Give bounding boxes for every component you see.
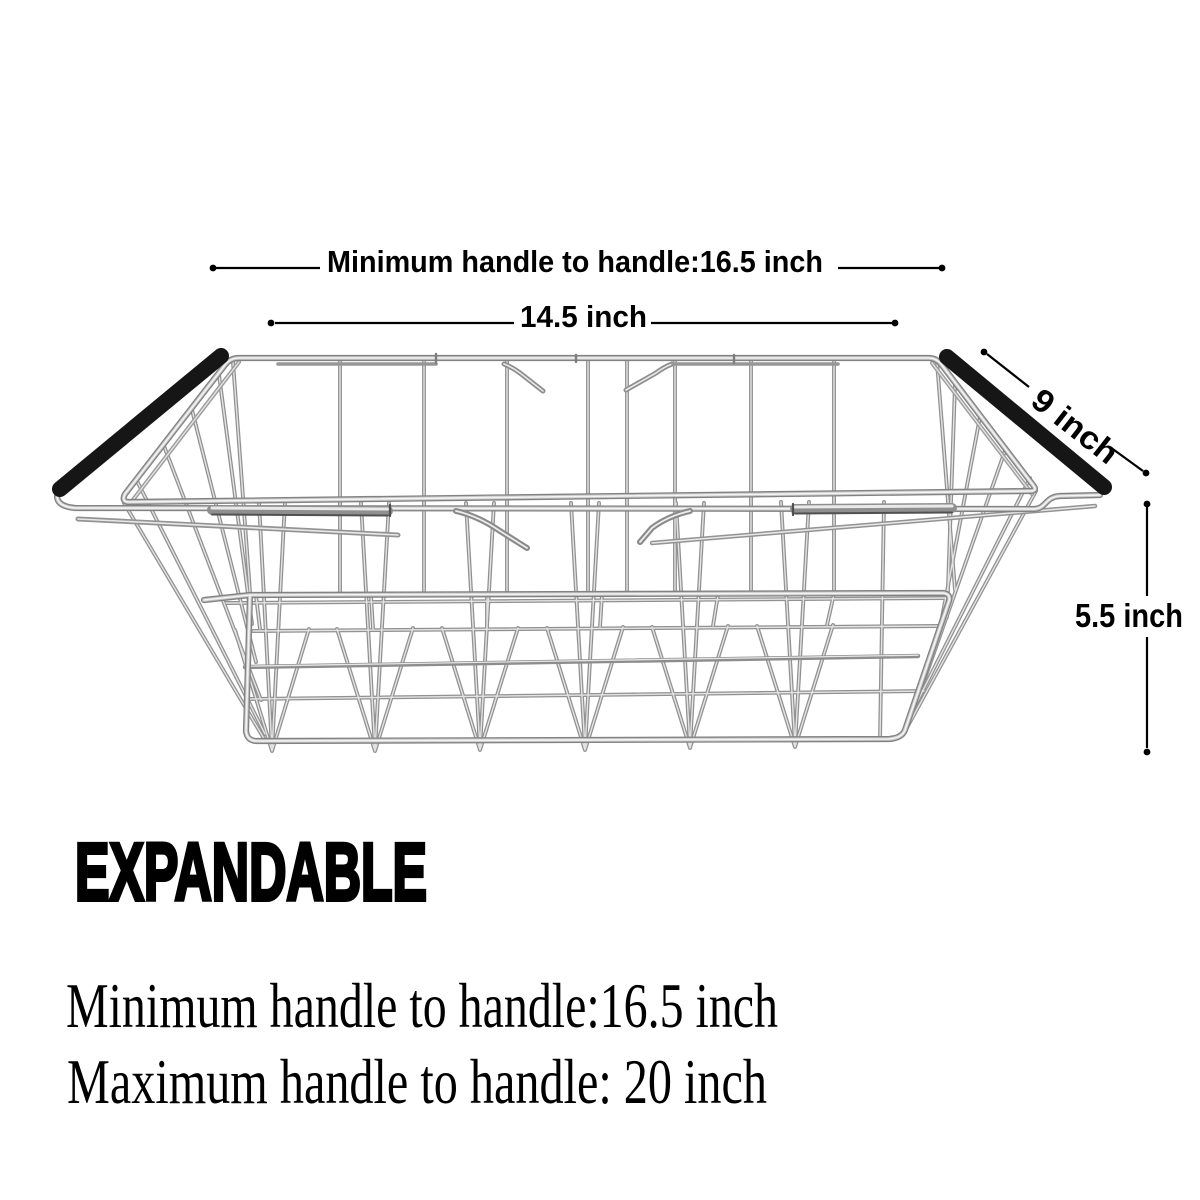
svg-text:Maximum handle to handle: 20 i: Maximum handle to handle: 20 inch xyxy=(67,1046,767,1117)
svg-text:14.5 inch: 14.5 inch xyxy=(520,299,647,334)
svg-text:Minimum handle to handle:16.5: Minimum handle to handle:16.5 inch xyxy=(327,244,823,279)
svg-text:Minimum handle to handle:16.5: Minimum handle to handle:16.5 inch xyxy=(66,970,778,1041)
svg-text:5.5 inch: 5.5 inch xyxy=(1075,597,1183,634)
svg-text:EXPANDABLE: EXPANDABLE xyxy=(75,827,427,918)
